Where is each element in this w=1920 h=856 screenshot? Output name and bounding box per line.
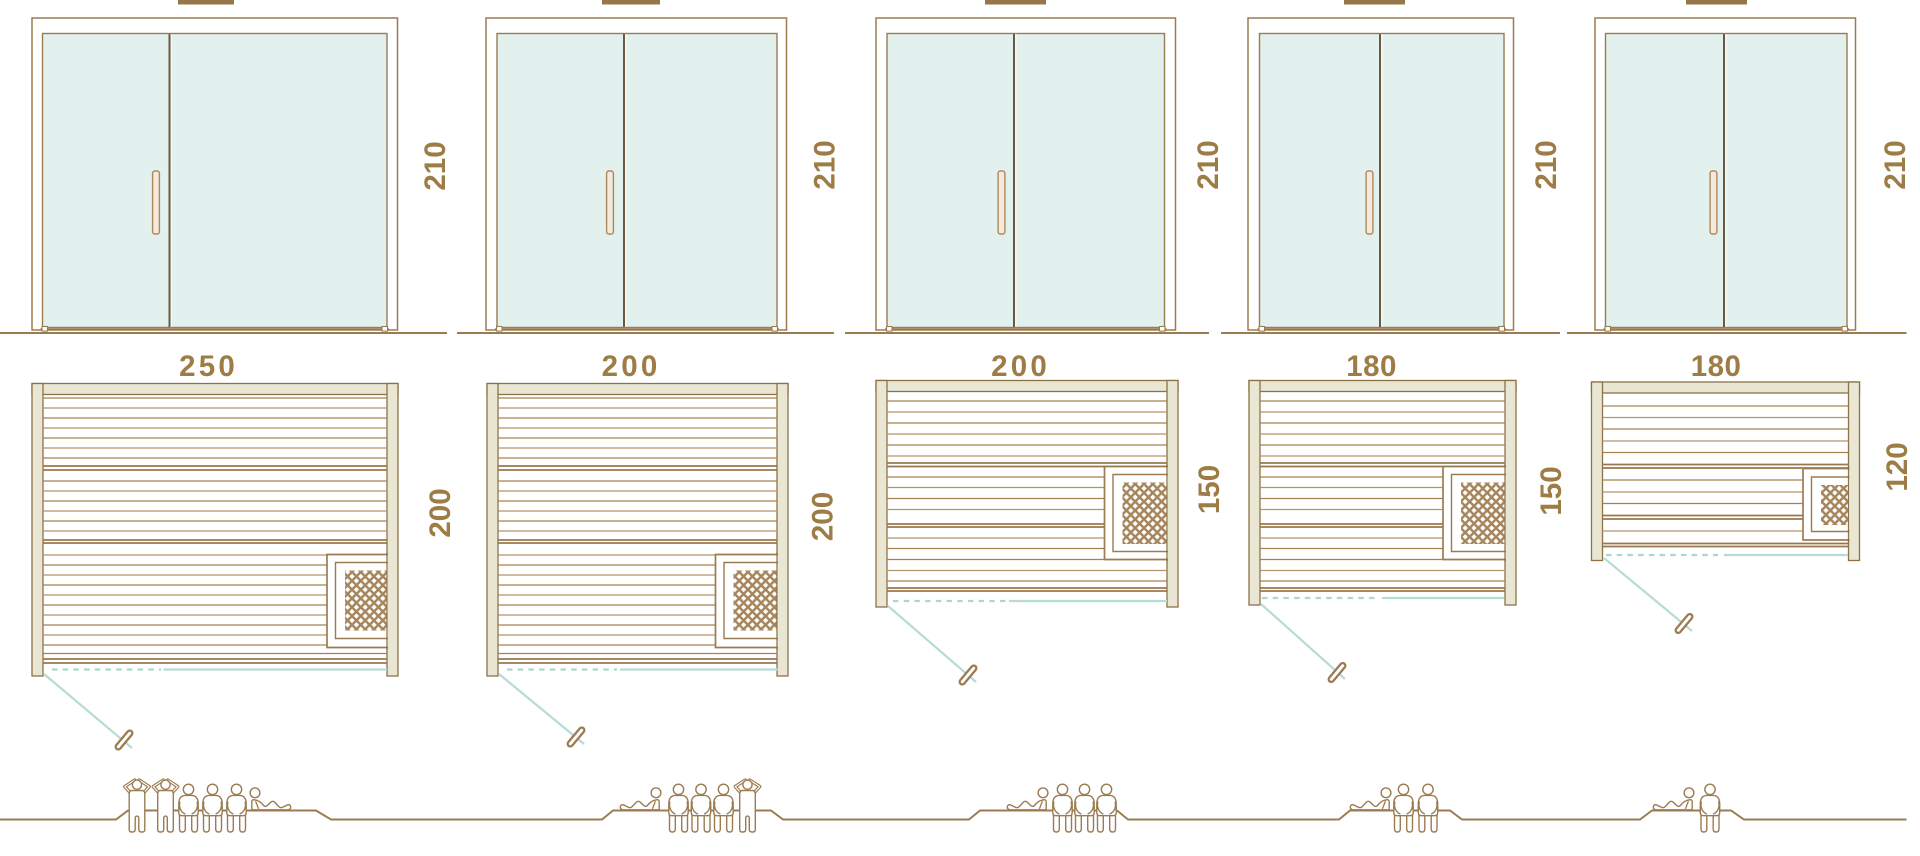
svg-text:210: 210 <box>809 140 842 189</box>
svg-text:200: 200 <box>602 350 661 383</box>
svg-text:150: 150 <box>1193 465 1226 514</box>
svg-text:210: 210 <box>419 141 452 190</box>
svg-text:210: 210 <box>1530 140 1563 189</box>
svg-text:200: 200 <box>991 350 1050 383</box>
svg-text:250: 250 <box>179 350 238 383</box>
svg-text:150: 150 <box>1535 466 1568 515</box>
svg-text:210: 210 <box>1192 140 1225 189</box>
svg-text:210: 210 <box>1879 140 1912 189</box>
svg-text:180: 180 <box>1346 350 1397 383</box>
svg-text:180: 180 <box>1691 350 1742 383</box>
svg-text:200: 200 <box>424 488 457 537</box>
svg-text:200: 200 <box>807 492 840 541</box>
svg-text:120: 120 <box>1881 442 1914 491</box>
